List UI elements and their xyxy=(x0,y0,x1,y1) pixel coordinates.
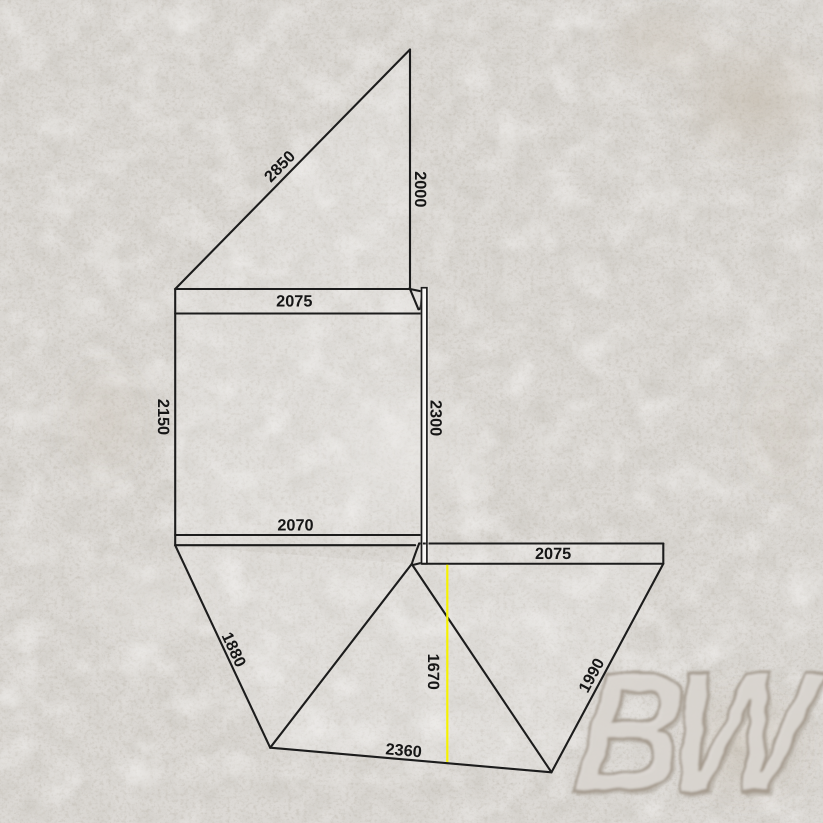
svg-text:2300: 2300 xyxy=(427,400,445,436)
svg-text:1670: 1670 xyxy=(424,654,442,690)
svg-text:2075: 2075 xyxy=(276,292,312,310)
svg-text:2070: 2070 xyxy=(277,517,313,535)
svg-text:2000: 2000 xyxy=(411,171,429,207)
svg-text:2360: 2360 xyxy=(385,740,423,761)
svg-text:2150: 2150 xyxy=(154,399,172,435)
svg-text:2075: 2075 xyxy=(535,545,571,563)
